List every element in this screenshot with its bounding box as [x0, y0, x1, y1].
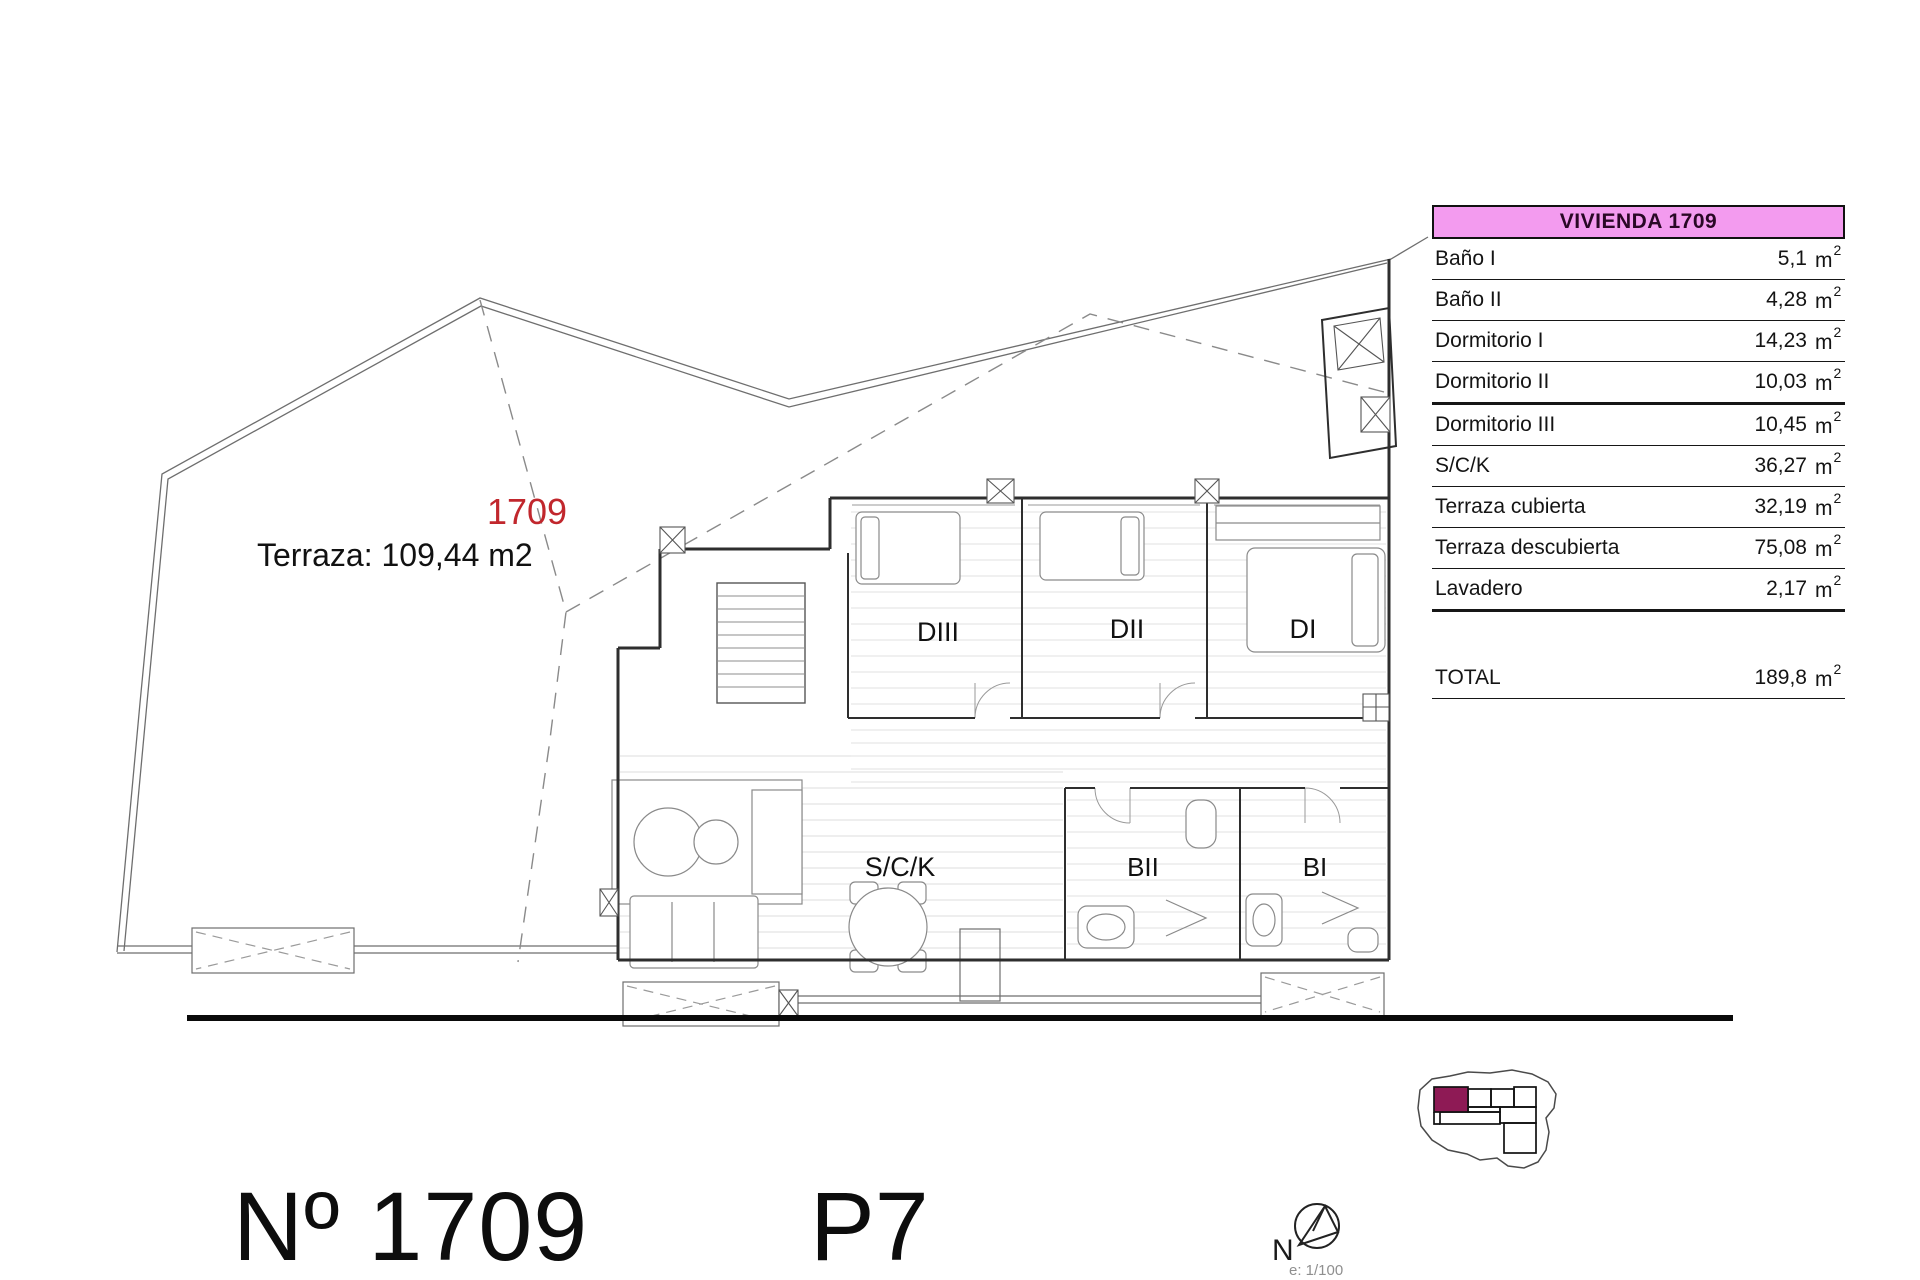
row-unit: m2: [1815, 453, 1845, 480]
table-row: Baño I5,1m2: [1432, 239, 1845, 280]
row-value: 75,08: [1619, 536, 1807, 560]
table-row: Dormitorio I14,23m2: [1432, 321, 1845, 362]
table-row: Dormitorio III10,45m2: [1432, 405, 1845, 446]
room-label-sck: S/C/K: [865, 852, 936, 882]
row-label: Dormitorio II: [1432, 370, 1549, 394]
scale-label: e: 1/100: [1289, 1262, 1343, 1279]
table-row: S/C/K36,27m2: [1432, 446, 1845, 487]
sofa: [630, 896, 758, 968]
row-unit: m2: [1815, 246, 1845, 273]
row-label: Baño I: [1432, 247, 1496, 271]
area-table: VIVIENDA 1709 Baño I5,1m2Baño II4,28m2Do…: [1432, 205, 1845, 699]
row-label: Dormitorio I: [1432, 329, 1544, 353]
row-unit: m2: [1815, 369, 1845, 396]
total-label: TOTAL: [1432, 666, 1501, 690]
room-label-diii: DIII: [917, 617, 959, 647]
toilet-bi: [1348, 928, 1378, 952]
row-label: Terraza descubierta: [1432, 536, 1619, 560]
row-value: 10,45: [1555, 413, 1807, 437]
row-unit: m2: [1815, 576, 1845, 603]
table-row: Terraza descubierta75,08m2: [1432, 528, 1845, 569]
total-unit: m2: [1815, 665, 1845, 692]
row-unit: m2: [1815, 494, 1845, 521]
row-unit: m2: [1815, 412, 1845, 439]
sheet-unit-number: Nº 1709: [233, 1178, 588, 1275]
row-unit: m2: [1815, 535, 1845, 562]
dining-table: [849, 888, 927, 966]
row-value: 36,27: [1490, 454, 1807, 478]
keyplan: [1418, 1070, 1556, 1168]
shower-bi: [1322, 892, 1358, 924]
row-label: Lavadero: [1432, 577, 1523, 601]
room-label-bi: BI: [1303, 852, 1328, 882]
divider-line: [187, 1015, 1733, 1021]
row-value: 5,1: [1496, 247, 1807, 271]
area-table-header: VIVIENDA 1709: [1432, 205, 1845, 239]
row-value: 2,17: [1523, 577, 1807, 601]
row-value: 4,28: [1502, 288, 1807, 312]
room-label-dii: DII: [1110, 614, 1145, 644]
north-compass-icon: [1295, 1204, 1339, 1248]
keyplan-highlight: [1434, 1087, 1468, 1112]
table-total-row: TOTAL 189,8 m2: [1432, 658, 1845, 699]
row-unit: m2: [1815, 328, 1845, 355]
row-value: 32,19: [1586, 495, 1807, 519]
row-label: Dormitorio III: [1432, 413, 1555, 437]
room-label-bii: BII: [1127, 852, 1159, 882]
shower-bii: [1166, 900, 1206, 936]
row-label: Baño II: [1432, 288, 1502, 312]
sheet-floor-code: P7: [810, 1178, 929, 1275]
stairs: [717, 583, 805, 703]
table-row: Baño II4,28m2: [1432, 280, 1845, 321]
unit-number-label: 1709: [487, 491, 567, 532]
total-value: 189,8: [1501, 666, 1807, 690]
terrace-area-label: Terraza: 109,44 m2: [257, 537, 533, 573]
area-table-rows: Baño I5,1m2Baño II4,28m2Dormitorio I14,2…: [1432, 239, 1845, 612]
toilet-bii: [1186, 800, 1216, 848]
row-label: Terraza cubierta: [1432, 495, 1586, 519]
table-row: Lavadero2,17m2: [1432, 569, 1845, 612]
row-value: 14,23: [1544, 329, 1807, 353]
row-value: 10,03: [1549, 370, 1807, 394]
row-unit: m2: [1815, 287, 1845, 314]
table-row: Terraza cubierta32,19m2: [1432, 487, 1845, 528]
row-label: S/C/K: [1432, 454, 1490, 478]
floorplan-sheet: 1709 Terraza: 109,44 m2 DIII DII DI S/C/…: [0, 0, 1920, 1280]
room-label-di: DI: [1290, 614, 1317, 644]
table-row: Dormitorio II10,03m2: [1432, 362, 1845, 405]
